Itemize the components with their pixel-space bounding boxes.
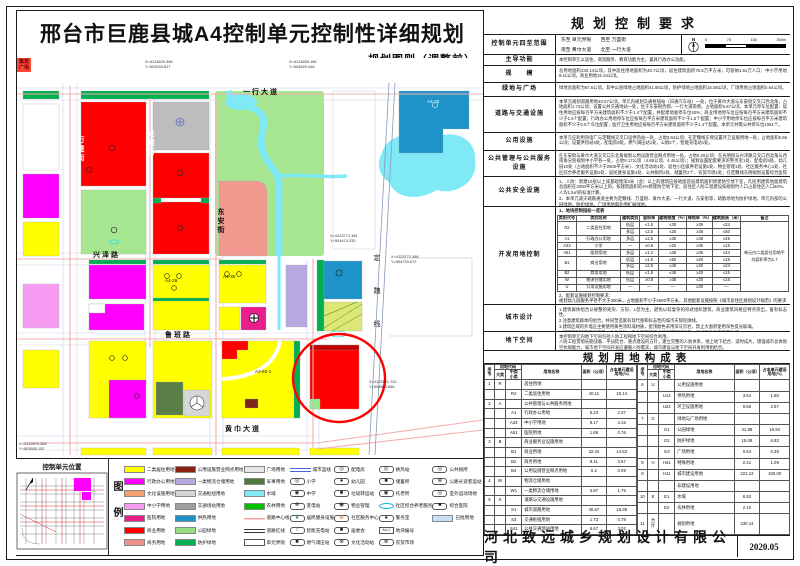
- row-text: 在东安街与黄巾大道交叉口东北角规划公用设施营业网点用地一处，占地0.20公顷；在…: [556, 151, 790, 176]
- svg-text:N: N: [692, 37, 695, 42]
- legend-swatch: [244, 529, 265, 533]
- legend-item: 水域: [244, 488, 290, 499]
- requirement-row: 公共管理与公共服务设施 在东安街与黄巾大道交叉口东北角规划公用设施营业网点用地一…: [484, 151, 790, 177]
- planning-requirements-panel: 规划控制要求 控制单元四至范围 东至 单元界限 西至 万盛街 南至 黄巾大道 北…: [483, 10, 790, 556]
- legend-swatch: ◎: [432, 490, 447, 497]
- supporting-facility-note: 2、配套设施规划控制要求： 规划幼儿园服务半径不大于300米，占地面积不小于26…: [556, 292, 790, 304]
- legend-item: 医院用地: [124, 513, 175, 524]
- legend-swatch: ■: [432, 503, 447, 510]
- legend-swatch: [432, 515, 453, 522]
- extent-label: 控制单元四至范围: [484, 35, 556, 54]
- legend-item: 文化设施用地: [124, 488, 175, 499]
- map-label: 兴泽路: [93, 252, 120, 259]
- legend-swatch: ○: [290, 527, 305, 534]
- legend-item: 公园绿地: [175, 525, 244, 536]
- legend-swatch: [124, 527, 145, 534]
- legend-item: ◎公共厕所: [432, 464, 481, 475]
- land-use-table-right: 序号用地代码用地名称面积（公顷）占本单元建设用地(%)大类中类 小类6U公用设施…: [637, 364, 790, 535]
- legend-item: 农林用地: [244, 501, 290, 512]
- legend-swatch: ●: [334, 478, 349, 485]
- extent-directions: 东至 单元界限 西至 万盛街 南至 黄巾大道 北至 一行大道: [556, 35, 682, 54]
- legend-swatch: ◎: [290, 478, 305, 485]
- legend-item: 一类物流仓储用地: [175, 476, 244, 487]
- legend-swatch: ●: [379, 515, 394, 522]
- legend-swatch: ■: [379, 478, 394, 485]
- row-label: 公用设施: [484, 133, 556, 150]
- title-bar: 河北致远城乡规划设计有限公司 2020.05: [484, 536, 790, 557]
- legend-column: 广场用地军事用地水域农林用地道路中心线道路红线单元界限: [244, 464, 290, 551]
- legend-item: ⊗文化活动站: [334, 537, 379, 548]
- coordinate-label: X=4124655.185Y=504629.448: [289, 60, 317, 70]
- coordinate-label: X=4124629.306Y=503253.817: [145, 60, 173, 70]
- legend-item: ●幼儿园: [334, 476, 379, 487]
- plan-sheet: 邢台市巨鹿县城A4控制单元控制性详细规划 ——规划图则（调整前）: [0, 0, 800, 566]
- legend-item: 公用设施营业网点用地: [175, 464, 244, 475]
- legend-column: 城市蓝线◎小学◉中学⊗变电站●居民健身设施○智能充电站■燃气调压站: [290, 464, 335, 551]
- legend-swatch: [175, 466, 196, 473]
- map-label: 万盛街: [77, 136, 84, 163]
- legend-title: 图例: [109, 459, 124, 555]
- scale-area: N 075 150300m: [682, 35, 790, 54]
- legend-swatch: ⊗: [334, 539, 349, 546]
- legend-swatch: ⊕: [334, 515, 349, 522]
- row-text: 1、人防：新建10层以上或基础埋深3米（含）以上的建筑应按地面首层建筑面积修建防…: [556, 177, 790, 206]
- row-label: 道路与交通设施: [484, 97, 556, 132]
- row-text: 本控制单元内地下空间包括人防工程和地下空间综合利用。 人防工程贯彻长期战备、平战…: [556, 332, 790, 350]
- legend-item: ●居民健身设施: [290, 513, 335, 524]
- legend-column: ◎公共厕所⊗公路长途客运站◎室外运动场地■综合医院已批用地: [432, 464, 481, 551]
- legend-item: 社区综合养老服务: [379, 501, 433, 512]
- legend-swatch: [244, 515, 265, 522]
- legend-swatch: [244, 466, 265, 473]
- zoning-map: 一行大道兴泽路鲁班路黄巾大道万盛街光明街东安街定魏线A4-70A4-26A4-3…: [17, 58, 483, 458]
- legend-item: ■综合医院: [432, 501, 481, 512]
- legend-swatch: [244, 490, 265, 497]
- legend-swatch: [124, 490, 145, 497]
- market-plaza-label: 集贸广场: [17, 58, 31, 72]
- legend-swatch: [175, 503, 196, 510]
- legend-swatch: [175, 515, 196, 522]
- legend-swatch: [124, 466, 145, 473]
- map-label: 鲁班路: [165, 332, 192, 339]
- map-label: A4-70: [427, 100, 439, 105]
- scale-bar: 075 150300m: [705, 39, 786, 51]
- legend-item: ○智能充电站: [290, 525, 335, 536]
- legend-swatch: ◎: [432, 466, 447, 473]
- north-arrow-icon: N: [686, 36, 701, 53]
- legend-swatch: [175, 539, 196, 546]
- map-label: 光明街: [147, 130, 154, 157]
- row-label: 绿地与广场: [484, 83, 556, 96]
- legend-item: A4-1地块编号: [379, 525, 433, 536]
- legend-item: ⊗公路长途客运站: [432, 476, 481, 487]
- plot-index-table: 类别代号类别名称建筑类别容积率建筑密度（%）绿地率（%）建筑限高（米）备注R2二…: [557, 215, 789, 292]
- legend-swatch: ⊗: [379, 539, 394, 546]
- legend-item: ■居委会: [334, 525, 379, 536]
- legend-item: 商务用地: [124, 537, 175, 548]
- legend-item: ◎小学: [290, 476, 335, 487]
- unit-location-title: 控制单元位置: [16, 461, 108, 471]
- legend-swatch: [379, 503, 394, 509]
- legend-swatch: [124, 503, 145, 510]
- legend-item: ◎换热站: [379, 464, 433, 475]
- legend-swatch: [175, 490, 196, 497]
- requirement-row: 道路与交通设施 本单元规划道路用地40.67公顷。单元内规划交通枢纽站（日通汽车…: [484, 97, 790, 133]
- legend-swatch: [175, 527, 196, 534]
- row-label: 开发用地控制: [484, 207, 556, 304]
- legend-item: ◉物业管理: [334, 501, 379, 512]
- legend-swatch: ■: [334, 527, 349, 534]
- underground-space-row: 地下空间 本控制单元内地下空间包括人防工程和地下空间综合利用。 人防工程贯彻长期…: [484, 332, 790, 351]
- legend-swatch: [244, 478, 265, 485]
- coordinate-label: X=4123771.381Y=504474.333: [330, 234, 358, 244]
- legend-column: ◎换热站■储蓄所◉托老所社区综合养老服务●警务室A4-1地块编号⊗农贸市场: [379, 464, 433, 551]
- legend-item: ⊕社区服务中心: [334, 513, 379, 524]
- requirement-row: 绿地与广场 绿地总面积为67.6公顷，其中公园绿地占地面积41.88公顷，防护绿…: [484, 83, 790, 97]
- panel-title: 规划控制要求: [484, 10, 790, 35]
- legend-item: ⊗变电站: [290, 501, 335, 512]
- legend-item: 道路中心线: [244, 513, 290, 524]
- land-use-table-left: 序号用地代码用地名称面积（公顷）占本单元建设用地(%)大类中类 小类1R居住用地…: [484, 364, 637, 535]
- legend-item: ◎室外运动场地: [432, 488, 481, 499]
- legend-item: ⊗农贸市场: [379, 537, 433, 548]
- map-label: 定魏线: [373, 254, 380, 353]
- row-text: 本单元规划道路用地40.67公顷。单元内规划交通枢纽站（日通汽车站）一处，位于黄…: [556, 97, 790, 132]
- legend-item: ◉托老所: [379, 488, 433, 499]
- legend-item: 中小学用地: [124, 501, 175, 512]
- legend-item: 供热用地: [175, 513, 244, 524]
- requirement-row: 规 模 总用地面积230.14公顷，其中居住用地面积为40.7公顷，居住建筑面积…: [484, 66, 790, 83]
- company-name: 河北致远城乡规划设计有限公司: [484, 536, 737, 557]
- requirement-row: 公用设施 本单元应利用热电厂与定魏线交叉口设供热站一处，占地3.94公顷；在定魏…: [484, 133, 790, 151]
- legend-swatch: ⊗: [290, 503, 305, 510]
- legend-item: 道路红线: [244, 525, 290, 536]
- land-use-composition: 序号用地代码用地名称面积（公顷）占本单元建设用地(%)大类中类 小类1R居住用地…: [484, 364, 790, 536]
- legend-swatch: [290, 468, 311, 472]
- legend-column: 公用设施营业网点用地一类物流仓储用地交通枢纽用地交通场站用地供热用地公园绿地防护…: [175, 464, 244, 551]
- unit-location-panel: 控制单元位置: [16, 459, 109, 555]
- legend-item: ■燃气调压站: [290, 537, 335, 548]
- urban-design-row: 城市设计 1.建筑群体组合以规整的矩形、方形、L型为主，避免以较复杂的形式组织建…: [484, 305, 790, 332]
- map-label: 东安街: [217, 208, 224, 235]
- page-title: 邢台市巨鹿县城A4控制单元控制性详细规划: [40, 18, 476, 48]
- map-label: A4-26: [165, 279, 177, 284]
- requirement-rows: 主导功能 本控制单元以居住、商贸服务、教育功能为主，兼具行政办公功能。 规 模 …: [484, 55, 790, 207]
- row-text: 1.建筑群体组合以规整的矩形、方形、L型为主，避免以较复杂的形式组织建筑，商业建…: [556, 305, 790, 331]
- legend-swatch: ◎: [334, 466, 349, 473]
- map-label: A4-62-1: [255, 370, 271, 375]
- unit-location-minimap: [16, 472, 108, 550]
- legend-item: 城市蓝线: [290, 464, 335, 475]
- legend-swatch: ◉: [379, 490, 394, 497]
- map-label: A4-30: [223, 275, 235, 280]
- row-label: 城市设计: [484, 305, 556, 331]
- legend-item: 二类居住用地: [124, 464, 175, 475]
- map-label: 一行大道: [243, 89, 279, 96]
- dev-table-caption: 1、地块控制指标一览表: [556, 207, 790, 215]
- legend-item: ◉中学: [290, 488, 335, 499]
- development-control-content: 1、地块控制指标一览表 类别代号类别名称建筑类别容积率建筑密度（%）绿地率（%）…: [556, 207, 790, 304]
- legend-strip: 控制单元位置 图例 二类居住: [16, 458, 483, 555]
- legend-item: 商业用地: [124, 525, 175, 536]
- row-label: 公共安全设施: [484, 177, 556, 206]
- legend-swatch: ◉: [290, 490, 305, 497]
- legend-swatch: A4-1: [379, 527, 394, 534]
- row-text: 本单元应利用热电厂与定魏线交叉口设供热站一处，占地3.94公顷；在定魏线东侧设置…: [556, 133, 790, 150]
- legend-item: 单元界限: [244, 537, 290, 548]
- requirement-row: 主导功能 本控制单元以居住、商贸服务、教育功能为主，兼具行政办公功能。: [484, 55, 790, 66]
- row-text: 总用地面积230.14公顷，其中居住用地面积为40.7公顷，居住建筑面积76.5…: [556, 66, 790, 82]
- legend-item: 交通枢纽用地: [175, 488, 244, 499]
- row-label: 主导功能: [484, 55, 556, 65]
- legend-columns: 二类居住用地行政办公用地文化设施用地中小学用地医院用地商业用地商务用地 公用设施…: [124, 459, 484, 555]
- legend-item: 行政办公用地: [124, 476, 175, 487]
- legend-swatch: ◉: [334, 503, 349, 510]
- land-use-table-title: 规划用地构成表: [484, 351, 790, 364]
- legend-swatch: [244, 539, 265, 546]
- legend-item: 防护绿地: [175, 537, 244, 548]
- coordinate-label: X=4122876.355Y=503555.152: [19, 442, 47, 452]
- legend-swatch: [124, 478, 145, 485]
- development-control-row: 开发用地控制 1、地块控制指标一览表 类别代号类别名称建筑类别容积率建筑密度（%…: [484, 207, 790, 305]
- coordinate-label: X=4123771.388Y=504733.672: [391, 255, 419, 265]
- coordinate-label: X=4122991.722Y=504603.668: [369, 380, 397, 390]
- legend-swatch: ⊗: [432, 478, 447, 485]
- legend-swatch: [124, 539, 145, 546]
- row-label: 公共管理与公共服务设施: [484, 151, 556, 176]
- legend-swatch: [244, 503, 265, 510]
- legend-column: 二类居住用地行政办公用地文化设施用地中小学用地医院用地商业用地商务用地: [124, 464, 175, 551]
- row-text: 绿地总面积为67.6公顷，其中公园绿地占地面积41.88公顷，防护绿地占地面积1…: [556, 83, 790, 96]
- plan-date: 2020.05: [737, 536, 790, 557]
- legend-swatch: ■: [334, 490, 349, 497]
- legend-swatch: ◎: [379, 466, 394, 473]
- legend-item: 军事用地: [244, 476, 290, 487]
- legend-swatch: ●: [290, 515, 305, 522]
- legend-swatch: [124, 515, 145, 522]
- legend-swatch: ■: [290, 539, 305, 546]
- legend-item: 交通场站用地: [175, 501, 244, 512]
- row-label: 规 模: [484, 66, 556, 82]
- legend-item: 广场用地: [244, 464, 290, 475]
- map-label: 黄巾大道: [225, 426, 261, 433]
- legend-swatch: [175, 478, 196, 485]
- legend-item: ◎配电房: [334, 464, 379, 475]
- extent-row: 控制单元四至范围 东至 单元界限 西至 万盛街 南至 黄巾大道 北至 一行大道 …: [484, 35, 790, 55]
- legend-column: ◎配电房●幼儿园■垃圾转运站◉物业管理⊕社区服务中心■居委会⊗文化活动站: [334, 464, 379, 551]
- legend-item: ●警务室: [379, 513, 433, 524]
- row-text: 本控制单元以居住、商贸服务、教育功能为主，兼具行政办公功能。: [556, 55, 790, 65]
- legend-item: ■垃圾转运站: [334, 488, 379, 499]
- legend-item: 已批用地: [432, 513, 481, 524]
- legend-item: ■储蓄所: [379, 476, 433, 487]
- requirement-row: 公共安全设施 1、人防：新建10层以上或基础埋深3米（含）以上的建筑应按地面首层…: [484, 177, 790, 207]
- row-label: 地下空间: [484, 332, 556, 350]
